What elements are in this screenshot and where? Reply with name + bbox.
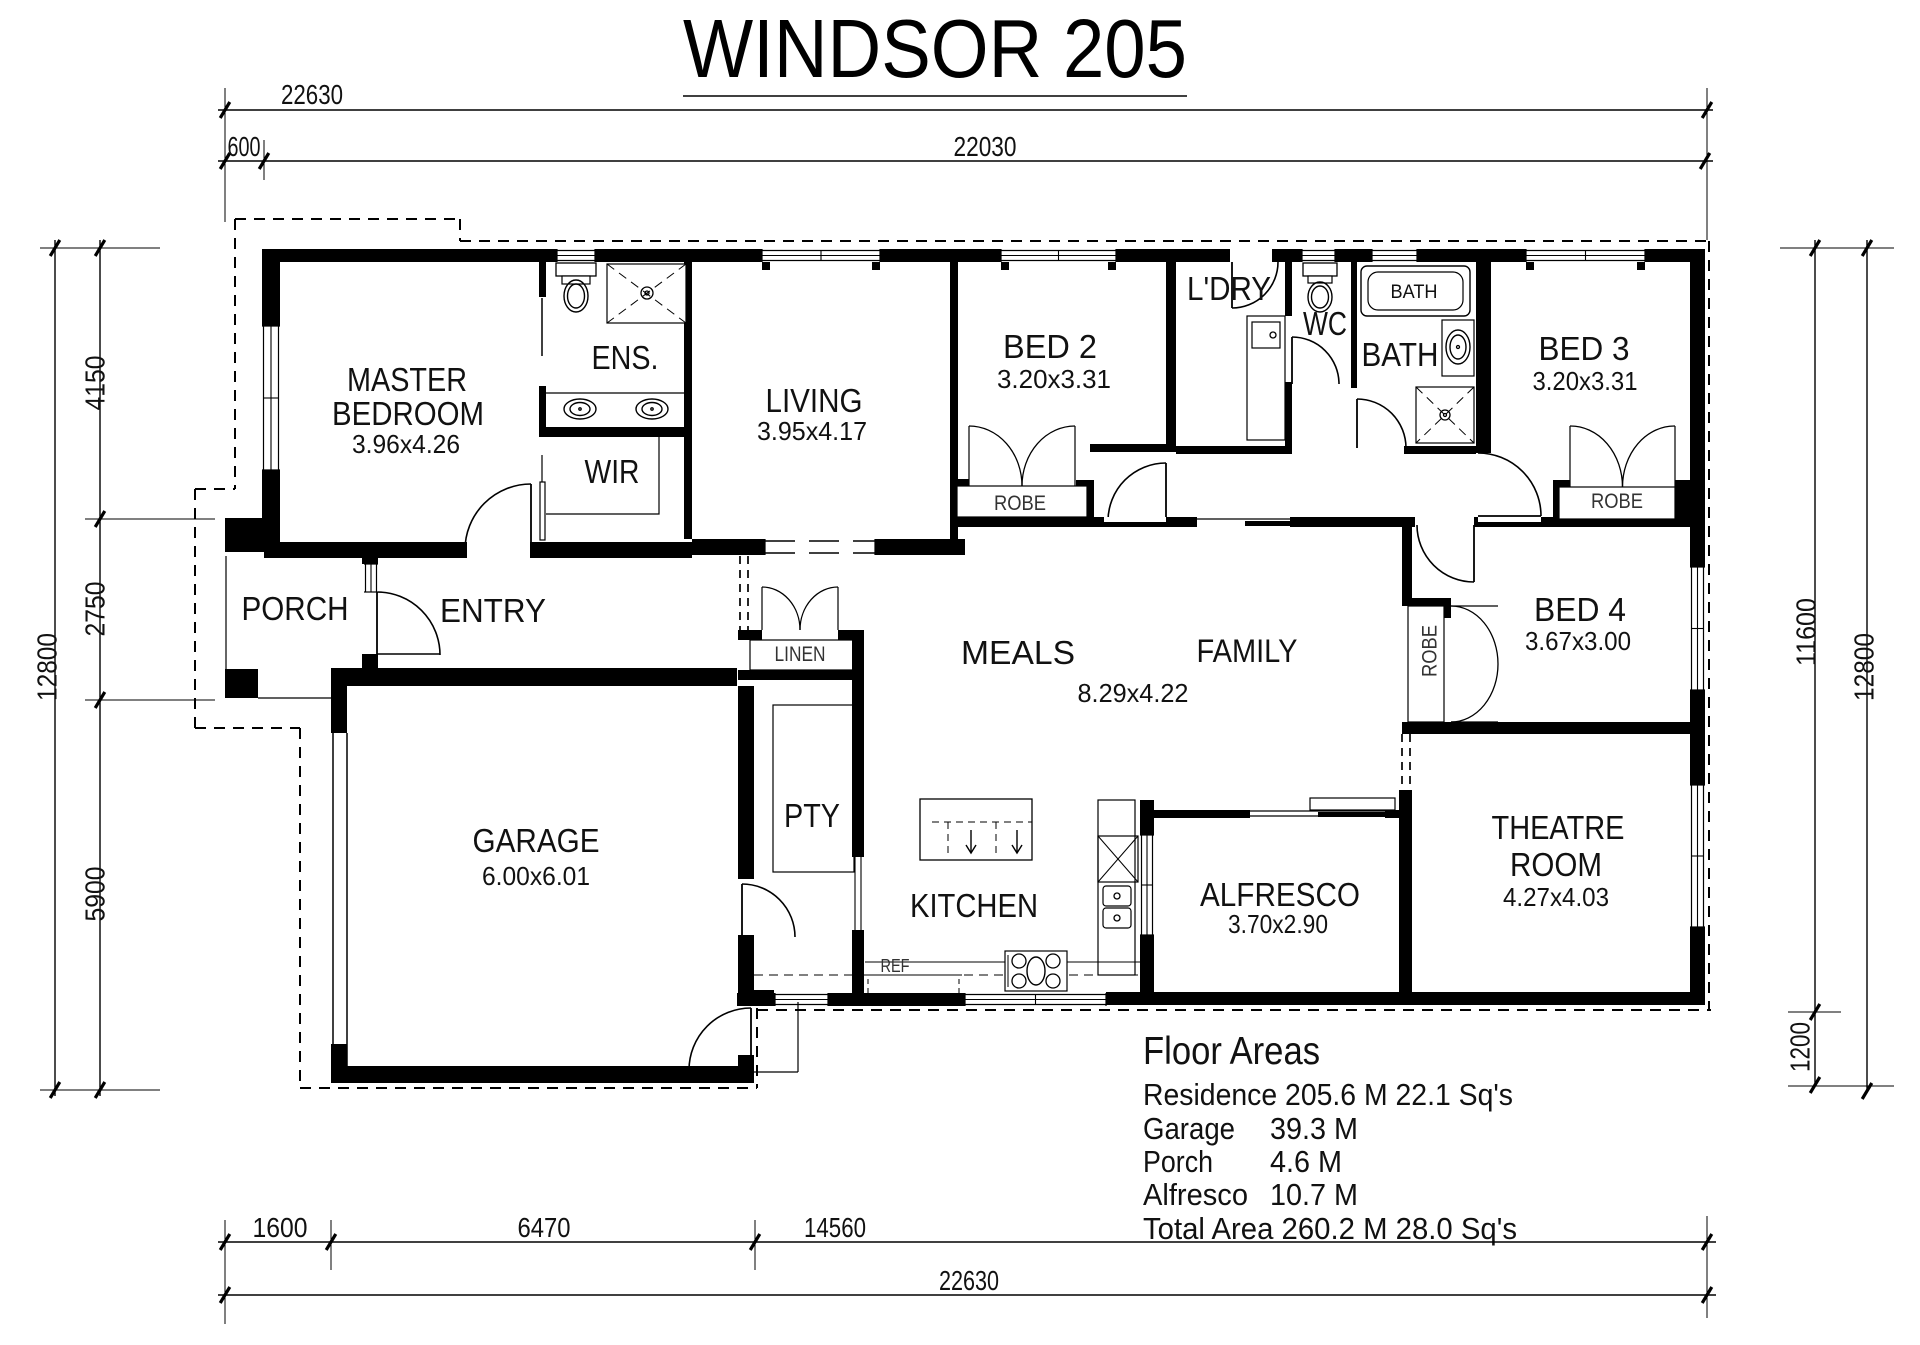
svg-text:3.96x4.26: 3.96x4.26: [352, 429, 460, 459]
svg-text:ENTRY: ENTRY: [440, 592, 546, 629]
svg-text:12800: 12800: [32, 633, 63, 701]
svg-text:6470: 6470: [518, 1212, 571, 1243]
svg-text:BED 2: BED 2: [1003, 328, 1097, 365]
svg-text:3.95x4.17: 3.95x4.17: [757, 416, 867, 446]
svg-text:WINDSOR 205: WINDSOR 205: [683, 2, 1187, 95]
svg-text:ENS.: ENS.: [592, 339, 659, 376]
svg-text:4.6 M: 4.6 M: [1270, 1144, 1342, 1179]
svg-text:1600: 1600: [253, 1212, 308, 1243]
svg-text:GARAGE: GARAGE: [473, 822, 600, 859]
svg-text:MASTER: MASTER: [347, 361, 467, 398]
svg-text:KITCHEN: KITCHEN: [910, 887, 1038, 924]
svg-text:4.27x4.03: 4.27x4.03: [1503, 882, 1609, 912]
svg-text:Floor Areas: Floor Areas: [1143, 1030, 1320, 1073]
svg-text:Total Area 260.2 M 28.0 Sq's: Total Area 260.2 M 28.0 Sq's: [1143, 1211, 1517, 1246]
svg-text:22030: 22030: [954, 131, 1017, 162]
svg-text:PORCH: PORCH: [242, 590, 349, 627]
svg-text:LINEN: LINEN: [775, 643, 826, 666]
svg-text:WC: WC: [1303, 305, 1347, 342]
svg-text:3.70x2.90: 3.70x2.90: [1228, 909, 1328, 939]
svg-text:FAMILY: FAMILY: [1197, 633, 1298, 669]
svg-text:3.67x3.00: 3.67x3.00: [1525, 626, 1631, 656]
svg-text:THEATRE: THEATRE: [1492, 809, 1625, 846]
svg-text:4150: 4150: [80, 356, 111, 411]
svg-text:14560: 14560: [804, 1212, 866, 1243]
svg-text:12800: 12800: [1849, 633, 1880, 701]
svg-text:LIVING: LIVING: [766, 382, 863, 419]
svg-text:600: 600: [228, 131, 261, 162]
svg-text:8.29x4.22: 8.29x4.22: [1078, 678, 1189, 708]
svg-text:MEALS: MEALS: [961, 634, 1075, 671]
svg-text:Residence 205.6 M 22.1 Sq's: Residence 205.6 M 22.1 Sq's: [1143, 1077, 1513, 1112]
svg-text:PTY: PTY: [784, 797, 840, 834]
svg-text:ALFRESCO: ALFRESCO: [1200, 876, 1360, 913]
svg-text:REF: REF: [881, 956, 910, 976]
svg-text:L'DRY: L'DRY: [1187, 270, 1271, 307]
svg-text:BEDROOM: BEDROOM: [332, 395, 484, 432]
svg-text:5900: 5900: [80, 867, 111, 922]
svg-text:BATH: BATH: [1391, 282, 1438, 303]
svg-text:39.3 M: 39.3 M: [1270, 1111, 1358, 1146]
svg-text:BED 4: BED 4: [1534, 591, 1626, 628]
svg-text:6.00x6.01: 6.00x6.01: [482, 861, 590, 891]
svg-text:WIR: WIR: [585, 453, 640, 490]
svg-text:22630: 22630: [939, 1265, 999, 1296]
svg-text:ROBE: ROBE: [1419, 625, 1442, 677]
svg-text:ROBE: ROBE: [994, 492, 1046, 515]
svg-text:22630: 22630: [281, 79, 343, 110]
svg-text:1200: 1200: [1785, 1022, 1816, 1072]
svg-text:Porch: Porch: [1143, 1144, 1213, 1179]
svg-text:11600: 11600: [1791, 598, 1822, 666]
svg-text:BED 3: BED 3: [1539, 330, 1630, 367]
svg-text:ROOM: ROOM: [1510, 846, 1602, 883]
svg-text:2750: 2750: [80, 582, 111, 637]
svg-text:3.20x3.31: 3.20x3.31: [997, 364, 1111, 394]
svg-text:Alfresco: Alfresco: [1143, 1177, 1248, 1212]
svg-text:Garage: Garage: [1143, 1111, 1235, 1146]
svg-text:10.7 M: 10.7 M: [1270, 1177, 1358, 1212]
svg-text:ROBE: ROBE: [1591, 490, 1643, 513]
svg-text:3.20x3.31: 3.20x3.31: [1533, 366, 1638, 396]
svg-text:BATH: BATH: [1362, 336, 1439, 373]
